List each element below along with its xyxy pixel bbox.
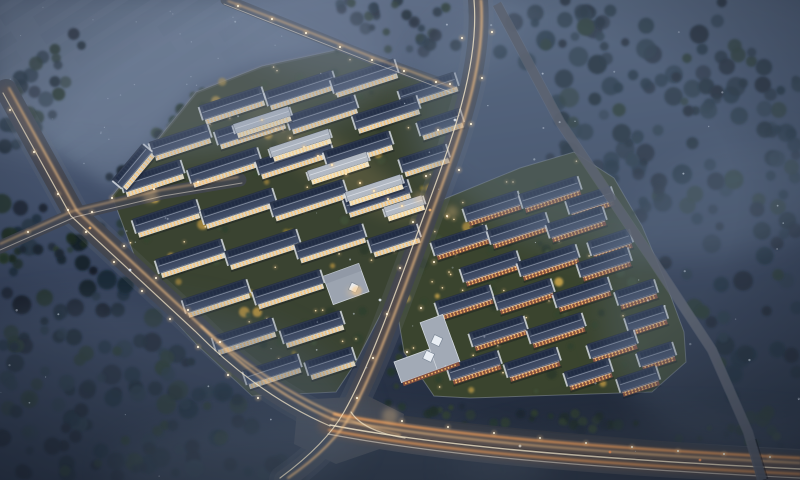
aerial-night-rendering	[0, 0, 800, 480]
rendering-canvas	[0, 0, 800, 480]
vignette	[0, 0, 800, 480]
